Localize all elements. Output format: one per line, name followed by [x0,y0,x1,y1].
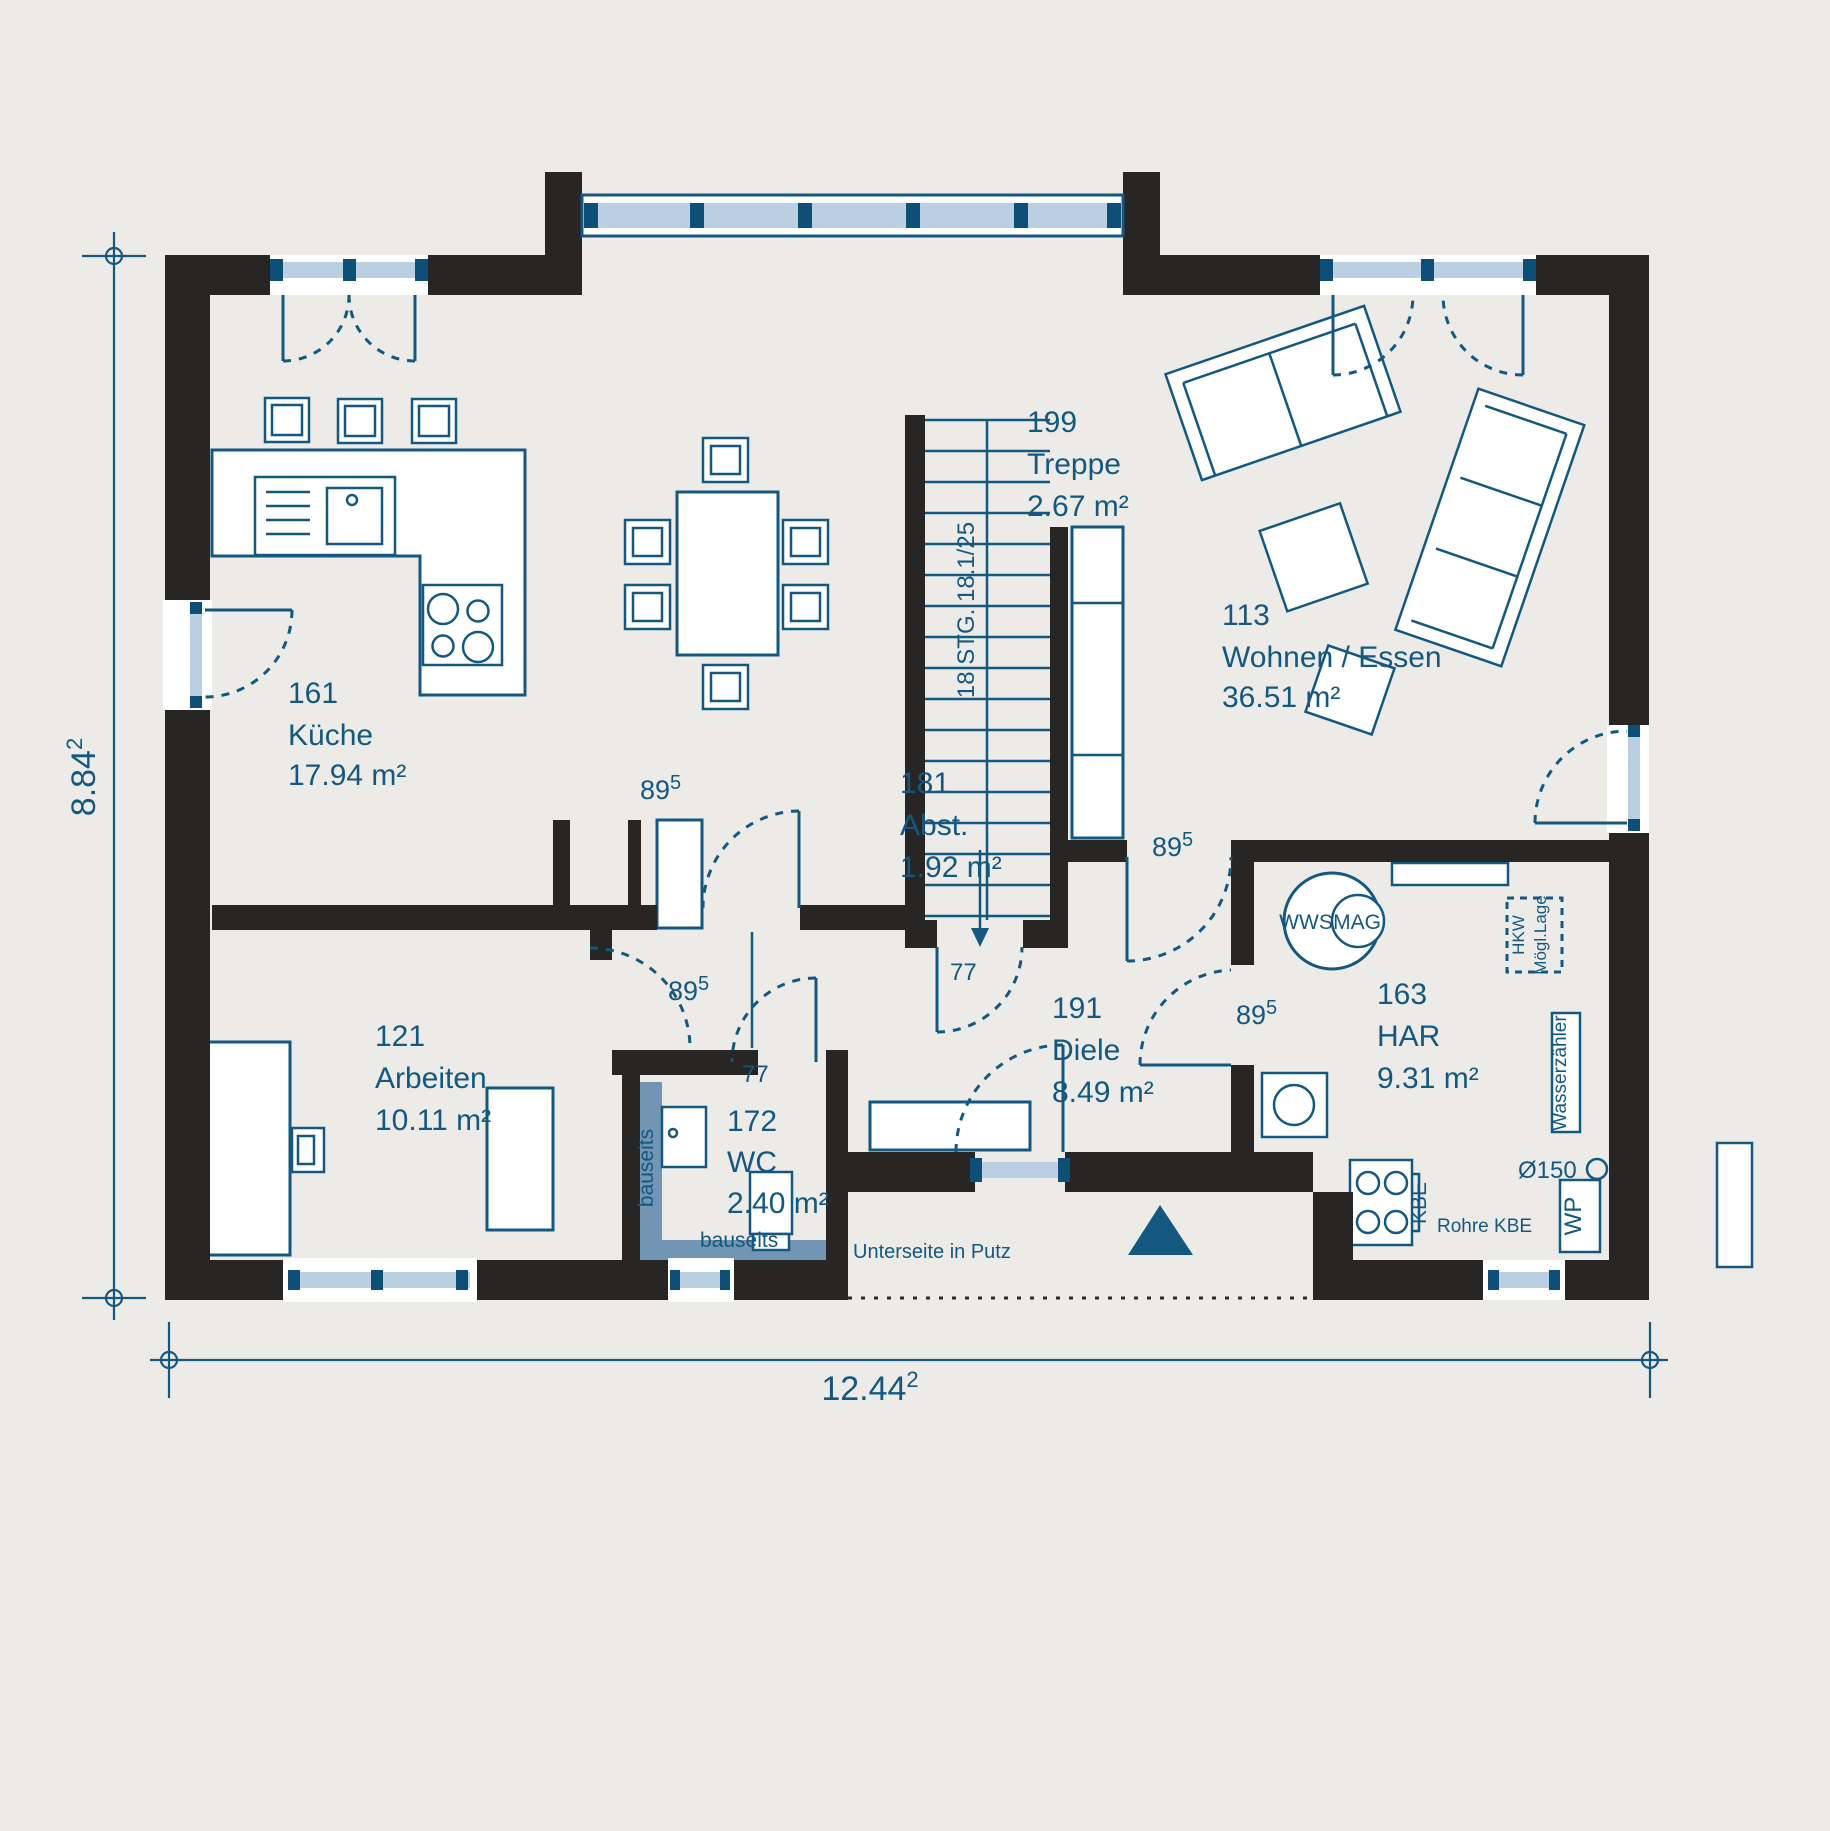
wall-pillar-left [545,172,582,295]
wall-left-upper [165,255,210,605]
door-kitchen-left [163,600,212,710]
wall-stub-1 [553,820,570,905]
dining-chair [703,665,748,709]
desk [208,1042,290,1255]
room-har-name: HAR [1377,1020,1440,1053]
dim-width-label: 12.442 [821,1367,918,1408]
wall-top-2 [428,255,545,295]
room-treppe-id: 199 [1027,406,1077,439]
dining-chair [783,520,828,564]
rohre-kbe-label: Rohre KBE [1437,1216,1532,1237]
bar-stool [338,399,382,443]
wall-stair-bottom-right [1023,920,1068,948]
window-terrace-band [582,195,1123,236]
wall-hall-1 [612,905,657,930]
bar-stool [412,399,456,443]
wall-right-lower [1609,830,1649,1300]
mag-label: MAG [1333,911,1381,934]
room-arbeiten-area: 10.11 m² [375,1104,491,1137]
wall-stair-bottom-left [905,920,937,948]
room-wohnen-id: 113 [1222,599,1270,632]
unterseite-label: Unterseite in Putz [853,1241,1011,1263]
kbe-label: KBE [1408,1182,1431,1224]
room-wohnen-area: 36.51 m² [1222,681,1340,714]
wall-bottom-left [165,1260,848,1300]
dining-chair [625,585,670,629]
window-living-top [1320,255,1536,295]
bauseits-label-horizontal: bauseits [700,1229,778,1252]
sideboard [870,1102,1030,1150]
room-abst-id: 181 [900,767,950,800]
room-diele-id: 191 [1052,992,1102,1025]
room-diele-area: 8.49 m² [1052,1076,1154,1109]
bauseits-label-vertical: bauseits [635,1129,658,1207]
room-wc-name: WC [727,1146,777,1179]
bar-stool [265,398,309,442]
wall-wc-top [612,1050,758,1075]
wp-label: WP [1560,1197,1587,1236]
window-bottom-office [283,1258,477,1302]
hkw-label-2: Mögl.Lage [1531,895,1550,974]
hall-cabinet [657,820,702,928]
room-har-area: 9.31 m² [1377,1062,1479,1095]
room-wohnen-name: Wohnen / Essen [1222,641,1442,674]
room-har-id: 163 [1377,978,1427,1011]
wall-har-top-2 [1231,840,1609,862]
room-abst-name: Abst. [900,809,968,842]
stair-spec-label: 18 STG. 18.1/25 [953,522,980,698]
floor-plan: 161 Küche 17.94 m² 121 Arbeiten 10.11 m²… [0,0,1830,1831]
washing-machine [1262,1073,1327,1137]
door-terrace-right [1607,725,1649,833]
room-kueche-id: 161 [288,677,338,710]
wall-hall-2 [800,905,905,930]
kitchen-sink [255,477,395,555]
stove [423,585,502,665]
wasserzaehler-label: Wasserzähler [1550,1015,1571,1131]
wall-top-1 [165,255,270,295]
wall-wc-right [826,1050,848,1300]
door-width-77: 77 [742,1061,769,1088]
tall-cabinet [1072,527,1123,838]
room-wc-area: 2.40 m² [727,1187,829,1220]
door-width-77: 77 [950,959,977,986]
wall-right-upper [1609,295,1649,727]
room-kueche-area: 17.94 m² [288,759,406,792]
wall-top-3 [1160,255,1320,295]
wall-porch-jog [1313,1192,1353,1300]
wall-top-4 [1536,255,1649,295]
room-kueche-name: Küche [288,719,373,752]
wall-har-top-1 [1068,840,1127,862]
window-bottom-wc [668,1258,734,1302]
wall-stub-2 [628,820,641,905]
wall-entrance-right [1065,1152,1313,1192]
room-diele-name: Diele [1052,1034,1120,1067]
diameter-label: Ø150 [1518,1157,1577,1184]
wall-pillar-right [1123,172,1160,295]
office-cabinet [487,1088,553,1230]
desk-chair [292,1128,324,1172]
room-arbeiten-id: 121 [375,1020,425,1053]
wall-har-west-upper [1231,862,1254,965]
wws-label: WWS [1279,911,1333,934]
window-bottom-har [1483,1260,1565,1300]
washbasin [662,1107,706,1167]
dining-table [677,492,778,655]
dining-chair [703,438,748,482]
wall-office-stub [590,930,612,960]
wall-har-west-lower [1231,1065,1254,1152]
wall-entrance-left [848,1152,975,1192]
wall-kitchen-divider [212,905,612,930]
room-treppe-area: 2.67 m² [1027,490,1129,523]
wall-left-lower [165,705,210,1300]
room-wc-id: 172 [727,1105,777,1138]
har-shelf [1392,863,1508,885]
dining-chair [783,585,828,629]
outdoor-unit [1717,1143,1752,1267]
wall-stair-right [1050,527,1068,948]
room-treppe-name: Treppe [1027,448,1121,481]
dining-chair [625,520,670,564]
room-arbeiten-name: Arbeiten [375,1062,487,1095]
wall-bottom-right [1313,1260,1649,1300]
floor-plan-svg: 161 Küche 17.94 m² 121 Arbeiten 10.11 m²… [0,0,1830,1831]
room-abst-area: 1.92 m² [900,851,1002,884]
window-kitchen-top [270,255,428,295]
hkw-label-1: HKW [1509,915,1528,955]
